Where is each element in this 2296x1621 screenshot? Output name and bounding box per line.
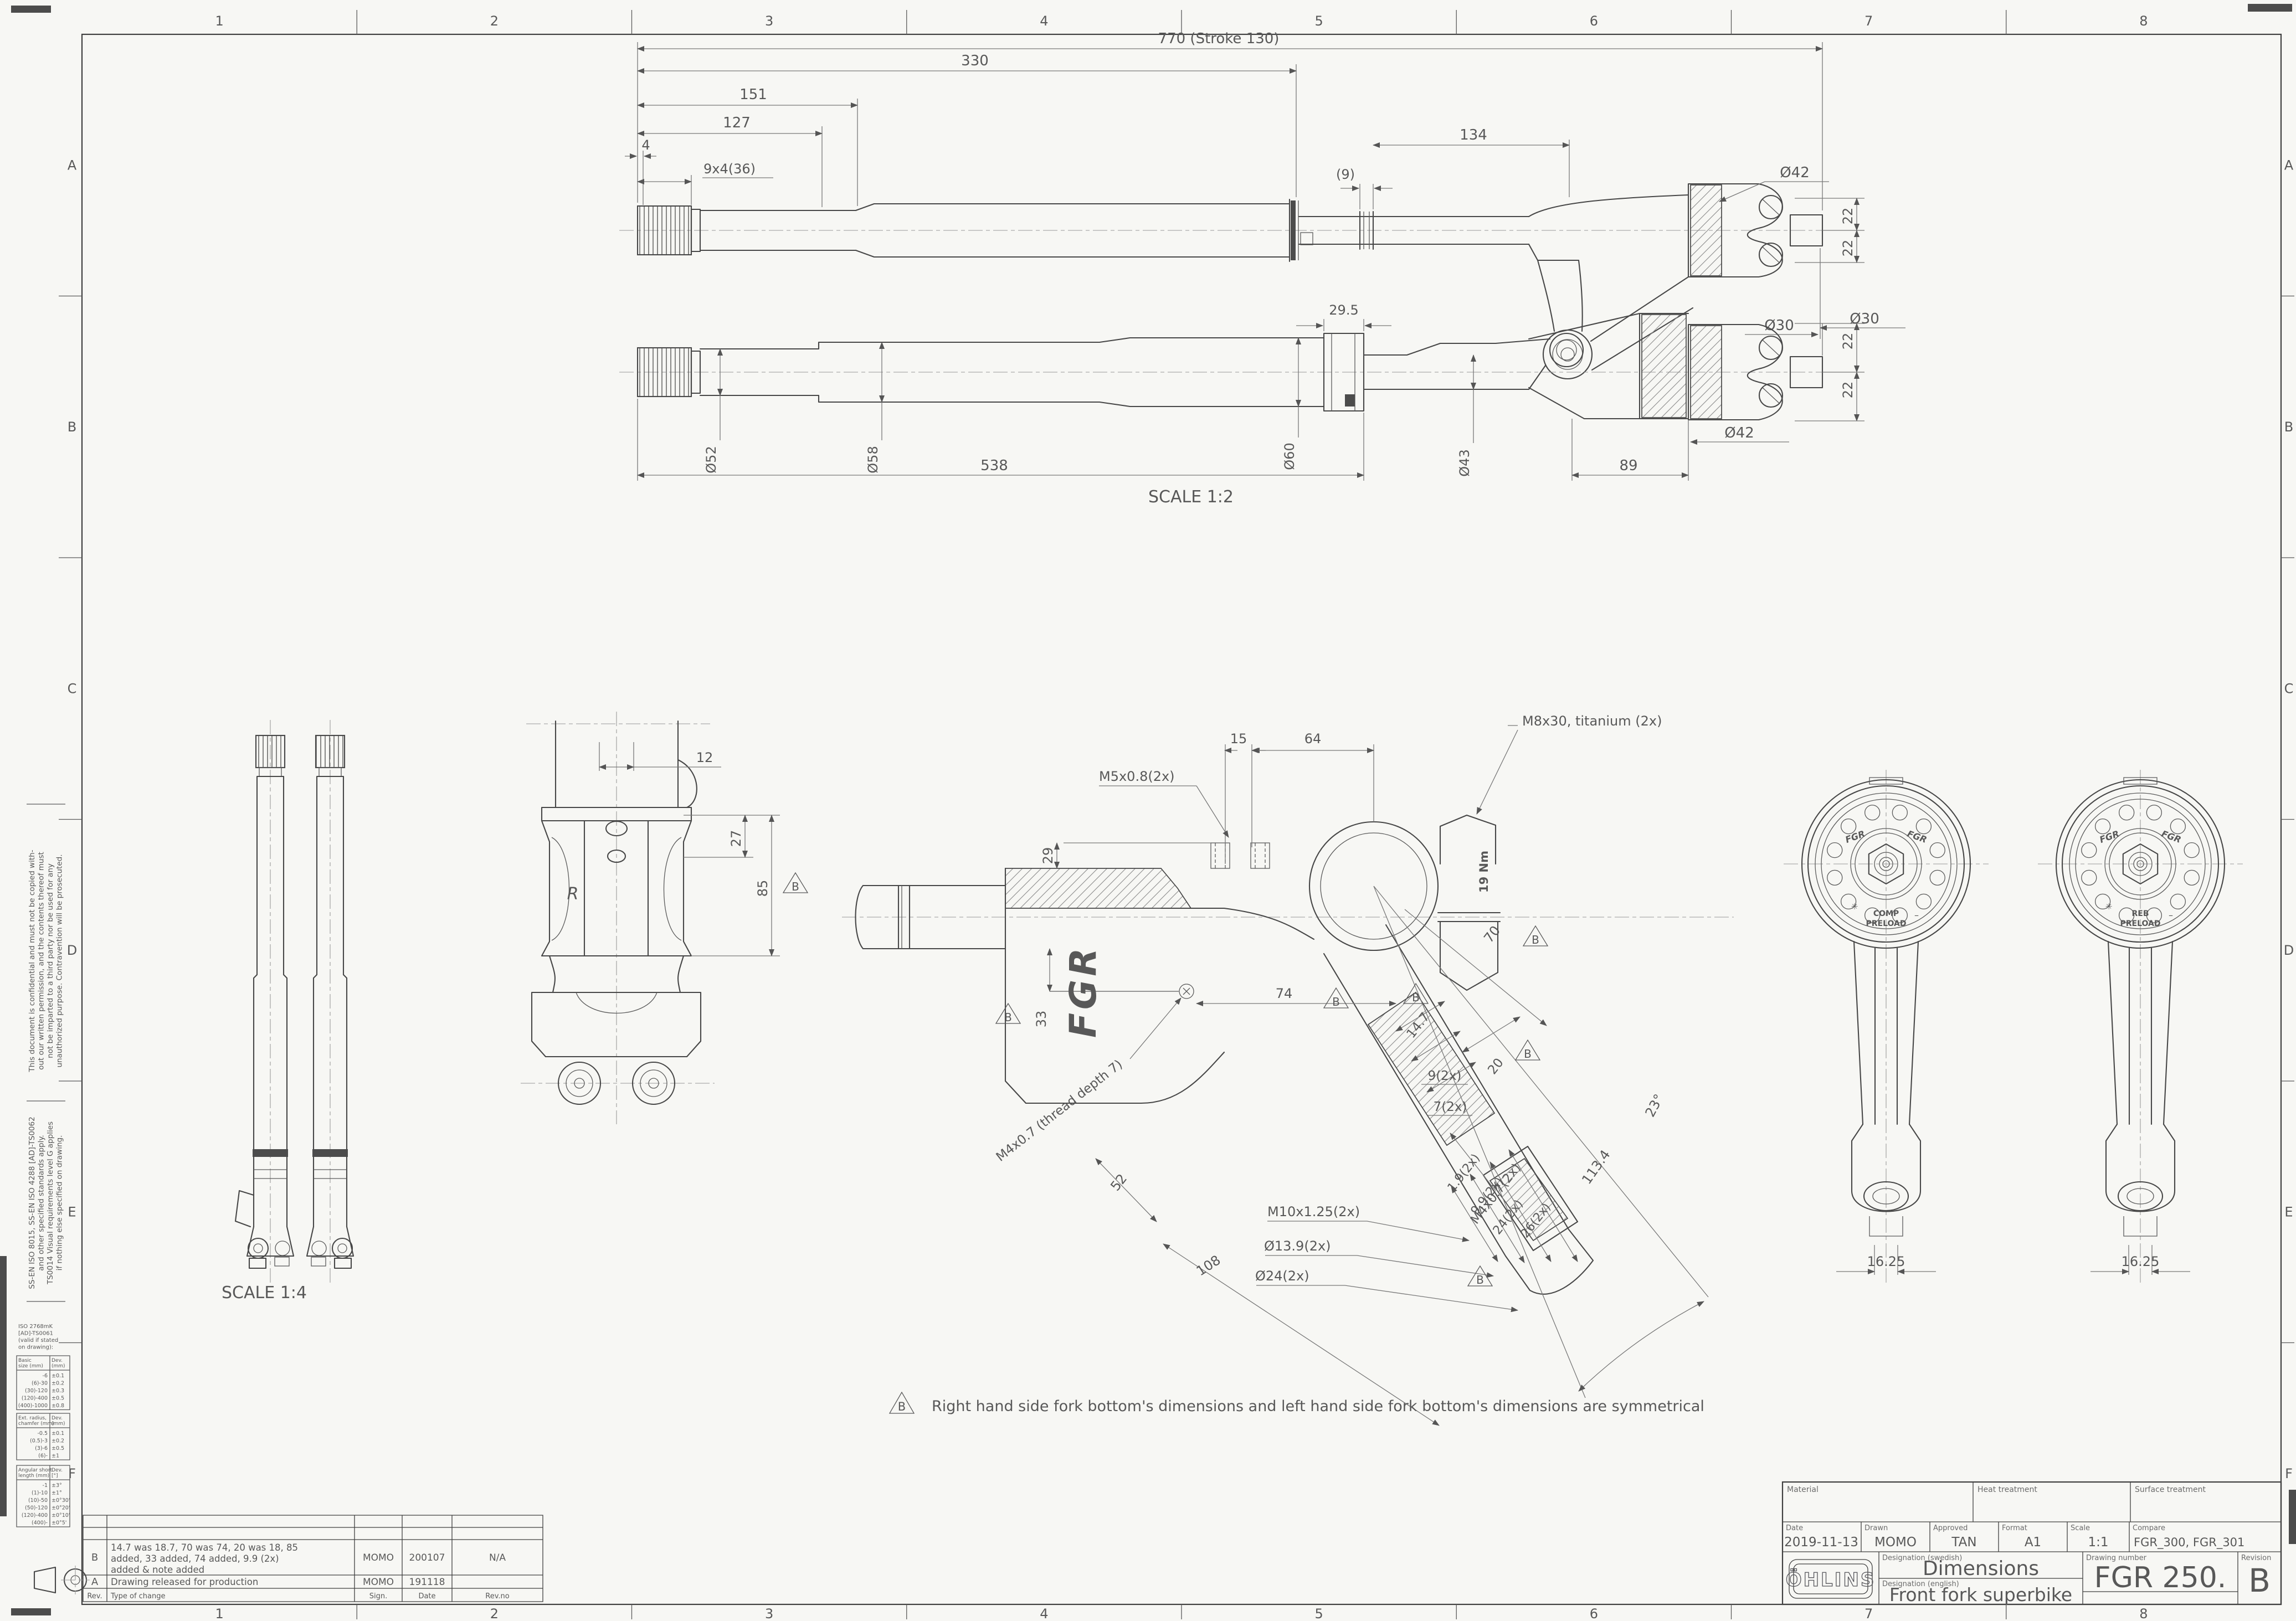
tolerance-cell: (50)-120 — [25, 1505, 48, 1511]
adjuster-hole — [1930, 870, 1945, 885]
tolerance-cell: ±0.1 — [52, 1373, 64, 1379]
value-designation-en: Front fork superbike — [1889, 1584, 2072, 1605]
datum-b: B — [1412, 991, 1420, 1004]
confidentiality-note-line: This document is confidential and must n… — [28, 850, 37, 1072]
grid-row-label: E — [68, 1204, 76, 1219]
adjuster-hole — [1892, 805, 1907, 820]
dim-538: 538 — [980, 457, 1008, 474]
label-compare: Compare — [2133, 1524, 2165, 1532]
label-format: Format — [2002, 1524, 2027, 1532]
value-revision: B — [2248, 1562, 2271, 1599]
grid-col-label: 8 — [2139, 1606, 2148, 1621]
tolerance-cell: ±0.2 — [52, 1438, 64, 1444]
dim-33: 33 — [1034, 1011, 1049, 1028]
label-date: Date — [1786, 1524, 1803, 1532]
dim-d24: Ø24(2x) — [1255, 1268, 1309, 1284]
value-drawn: MOMO — [1874, 1535, 1917, 1550]
tolerance-cell: (120)-400 — [22, 1512, 48, 1519]
dim-19x: 1.9(2x) — [1445, 1151, 1483, 1195]
dim-330: 330 — [961, 53, 989, 69]
revision-header: Date — [418, 1592, 435, 1601]
adjuster-plus-icon: – — [1914, 910, 1919, 920]
revision-sign: MOMO — [363, 1552, 394, 1563]
confidentiality-note-line: not be imparted to a third party nor be … — [46, 863, 55, 1058]
tolerance-cell: (6)-30 — [32, 1381, 48, 1387]
adjuster-plus-icon: – — [2169, 910, 2173, 920]
torque-label: 19 Nm — [1477, 851, 1491, 893]
revision-header: Rev.no — [485, 1592, 510, 1601]
value-date: 2019-11-13 — [1784, 1535, 1858, 1550]
tolerance-cell: -1 — [43, 1483, 48, 1489]
tolerance-cell: -6 — [43, 1373, 48, 1379]
dim-d43: Ø43 — [1457, 449, 1472, 476]
grid-row-label: F — [68, 1466, 76, 1481]
grid-col-label: 1 — [215, 13, 223, 29]
tolerance-cell: ±0.5 — [52, 1445, 64, 1452]
grid-row-label: A — [68, 157, 77, 173]
dim-22b: 22 — [1840, 240, 1856, 257]
grid-col-label: 6 — [1590, 13, 1598, 29]
adjuster-function-label: PRELOAD — [2120, 919, 2160, 928]
confidentiality-note-line: out our written permission, and the cont… — [37, 852, 46, 1070]
value-approved: TAN — [1951, 1535, 1976, 1550]
adjuster-hole — [1827, 843, 1842, 858]
tolerance-cell: (400)- — [32, 1520, 48, 1526]
tolerance-header: Ext. radius, — [18, 1416, 47, 1421]
standards-note-line: and other specified standards apply. — [37, 1135, 46, 1270]
revision-sign: MOMO — [363, 1577, 394, 1588]
dim-22c: 22 — [1840, 333, 1856, 350]
adjuster-fgr-logo: FGR — [1906, 828, 1929, 845]
grid-row-label: E — [2284, 1204, 2293, 1219]
revision-no: N/A — [489, 1552, 506, 1563]
tolerance-header: Dev. — [52, 1468, 63, 1473]
value-scale: 1:1 — [2088, 1535, 2108, 1550]
adjuster-hole — [1916, 894, 1931, 909]
adjuster-function-label: COMP — [1873, 909, 1899, 918]
dim-127: 127 — [723, 115, 751, 131]
tolerance-cell: (0.5)-3 — [30, 1438, 48, 1444]
note-text: Right hand side fork bottom's dimensions… — [932, 1398, 1704, 1415]
label-revision: Revision — [2241, 1554, 2271, 1562]
tolerance-cell: ±0°30' — [52, 1498, 70, 1504]
datum-b: B — [1004, 1011, 1012, 1024]
tolerance-cell: ±0°10' — [52, 1512, 70, 1519]
datum-b: B — [1332, 995, 1340, 1008]
datum-b: B — [1476, 1273, 1484, 1286]
adjuster-hole — [2082, 870, 2097, 885]
dim-d60: Ø60 — [1282, 442, 1297, 470]
adjuster-fgr-logo: FGR — [2098, 828, 2121, 845]
dim-27: 27 — [728, 830, 744, 847]
tolerance-cell: -0.5 — [37, 1430, 48, 1437]
adjuster-fgr-logo: FGR — [1844, 828, 1867, 845]
adjuster-hole — [2184, 843, 2199, 858]
dim-12: 12 — [696, 750, 713, 765]
standards-note-line: TS0014 Visual requirements level G appli… — [46, 1121, 55, 1285]
revision-change-line: 14.7 was 18.7, 70 was 74, 20 was 18, 85 — [111, 1542, 298, 1553]
tolerance-cell: (10)-50 — [28, 1498, 48, 1504]
tolerance-cell: ±0.8 — [52, 1403, 64, 1409]
dim-70: 70 — [1481, 923, 1503, 945]
revision-change-line: Drawing released for production — [111, 1577, 258, 1587]
dim-d52: Ø52 — [703, 446, 719, 473]
tolerance-cell: (3)-6 — [35, 1445, 48, 1452]
grid-row-label: A — [2284, 157, 2294, 173]
datum-b: B — [792, 880, 799, 893]
tolerance-header: [°] — [52, 1473, 58, 1479]
tolerance-cell: (1)-10 — [32, 1490, 48, 1496]
dim-22d: 22 — [1840, 382, 1856, 399]
value-format: A1 — [2025, 1535, 2041, 1550]
dim-29: 29 — [1040, 847, 1056, 864]
dim-d30b: Ø30 — [1850, 311, 1879, 327]
view-fork-legs: SCALE 1:4 — [222, 720, 353, 1303]
logo-r: R — [567, 884, 579, 904]
tolerance-note-line: ISO 2768mK — [18, 1324, 53, 1330]
dim-22a: 22 — [1840, 208, 1856, 225]
label-surface: Surface treatment — [2135, 1485, 2206, 1494]
dim-74: 74 — [1276, 986, 1293, 1001]
dim-1134: 113.4 — [1579, 1147, 1613, 1187]
value-compare: FGR_300, FGR_301 — [2134, 1536, 2244, 1550]
adjuster-hole — [2170, 894, 2185, 909]
scale-main-label: SCALE 1:2 — [1148, 487, 1234, 507]
revision-header: Sign. — [369, 1592, 388, 1601]
dim-overall: 770 (Stroke 130) — [1158, 30, 1280, 47]
adjuster-hole — [2184, 870, 2199, 885]
tolerance-cell: ±0°5' — [52, 1520, 66, 1526]
grid-col-label: 4 — [1040, 13, 1048, 29]
tolerance-header: Basic — [18, 1358, 32, 1363]
label-material: Material — [1787, 1485, 1819, 1494]
adjuster-hole — [2119, 805, 2134, 820]
revision-date: 200107 — [409, 1552, 445, 1563]
adjuster-minus-icon: ✳ — [2105, 902, 2113, 912]
adjuster-dim-1625: 16.25 — [1867, 1254, 1905, 1269]
revision-date: 191118 — [409, 1577, 445, 1588]
datum-b: B — [1524, 1047, 1532, 1061]
grid-col-label: 3 — [765, 1606, 773, 1621]
tolerance-cell: ±0.1 — [52, 1430, 64, 1437]
revision-rev: B — [91, 1552, 98, 1563]
dim-d42b: Ø42 — [1724, 425, 1754, 441]
tolerance-header: size (mm) — [18, 1363, 43, 1369]
dim-d42: Ø42 — [1780, 164, 1810, 181]
dim-4: 4 — [641, 137, 650, 153]
revision-header: Rev. — [87, 1592, 102, 1601]
title-block: Material Heat treatment Surface treatmen… — [1783, 1482, 2281, 1605]
revision-change-line: added, 33 added, 74 added, 9.9 (2x) — [111, 1553, 279, 1564]
dim-m4t: M4x0.7 (thread depth 7) — [994, 1057, 1126, 1165]
dim-9: (9) — [1336, 167, 1355, 182]
dim-d58: Ø58 — [865, 446, 881, 473]
standards-note-line: if nothing else specified on drawing. — [55, 1135, 64, 1271]
generated-content: 1122334455667788AABBCCDDEEFFThis documen… — [17, 10, 2294, 1621]
dim-d139: Ø13.9(2x) — [1264, 1238, 1331, 1254]
dim-295: 29.5 — [1329, 302, 1358, 318]
note-symbol: B — [898, 1400, 906, 1413]
tolerance-header: (mm) — [52, 1363, 65, 1369]
dim-7x: 7(2x) — [1434, 1100, 1467, 1114]
tolerance-note-line: on drawing): — [18, 1345, 53, 1351]
confidentiality-note-line: unauthorized purpose. Contravention will… — [55, 854, 64, 1067]
adjuster-hole — [2082, 843, 2097, 858]
grid-col-label: 6 — [1590, 1606, 1598, 1621]
tolerance-cell: ±1 — [52, 1453, 59, 1459]
tolerance-cell: ±1° — [52, 1490, 62, 1496]
adjuster-hole — [1827, 870, 1842, 885]
dim-151: 151 — [739, 86, 767, 103]
grid-row-label: B — [2284, 419, 2293, 435]
revision-header: Type of change — [110, 1592, 166, 1601]
grid-col-label: 2 — [490, 1606, 499, 1621]
grid-row-label: D — [2284, 943, 2294, 958]
grid-col-label: 7 — [1864, 1606, 1873, 1621]
label-approved: Approved — [1933, 1524, 1968, 1532]
tolerance-cell: (6)- — [38, 1453, 48, 1459]
dim-20: 20 — [1485, 1056, 1507, 1077]
tolerance-header: length (mm) — [18, 1473, 49, 1479]
dim-m10: M10x1.25(2x) — [1267, 1204, 1360, 1219]
label-scale: Scale — [2071, 1524, 2090, 1532]
tolerance-note-line: [AD]-TS0061 — [18, 1331, 53, 1337]
dim-89: 89 — [1619, 457, 1637, 474]
grid-row-label: D — [67, 943, 77, 958]
tolerance-cell: (30)-120 — [25, 1388, 48, 1394]
datum-b: B — [1532, 933, 1539, 946]
adjuster-function-label: PRELOAD — [1866, 919, 1906, 928]
grid-row-label: B — [68, 419, 76, 435]
grid-col-label: 1 — [215, 1606, 223, 1621]
grid-col-label: 4 — [1040, 1606, 1048, 1621]
grid-col-label: 7 — [1864, 13, 1873, 29]
adjuster-hole — [2146, 805, 2161, 820]
dim-m5: M5x0.8(2x) — [1099, 769, 1175, 784]
dim-15: 15 — [1230, 731, 1247, 747]
tolerance-cell: (400)-1000 — [18, 1403, 48, 1409]
dim-m8: M8x30, titanium (2x) — [1522, 713, 1662, 729]
dim-134: 134 — [1460, 127, 1487, 143]
tolerance-header: Dev. — [52, 1358, 63, 1363]
tolerance-header: Angular short — [18, 1468, 52, 1473]
dim-85: 85 — [755, 880, 771, 897]
grid-row-label: F — [2285, 1466, 2293, 1481]
ohlins-logo: ÖHLINS — [1786, 1568, 1876, 1591]
dim-108: 108 — [1194, 1252, 1224, 1279]
tolerance-cell: (120)-400 — [22, 1396, 48, 1402]
tolerance-cell: ±0.3 — [52, 1388, 64, 1394]
tolerance-note-line: (valid if stated — [18, 1337, 58, 1344]
tolerance-cell: ±0°20' — [52, 1505, 70, 1511]
tolerance-header: (mm) — [52, 1421, 65, 1427]
grid-col-label: 3 — [765, 13, 773, 29]
value-designation-sv: Dimensions — [1923, 1557, 2039, 1580]
tolerance-cell: ±3° — [52, 1483, 62, 1489]
label-heat: Heat treatment — [1977, 1485, 2037, 1494]
tolerance-cell: ±0.5 — [52, 1396, 64, 1402]
view-fork-compressed: 29.5 Ø52 Ø58 Ø60 Ø43 Ø42 Ø30 22 22 538 8… — [619, 302, 1905, 507]
tolerance-header: chamfer (mm) — [18, 1421, 54, 1427]
revision-rev: A — [91, 1576, 99, 1588]
dim-23deg: 23° — [1642, 1092, 1667, 1120]
tolerance-cell: ±0.2 — [52, 1381, 64, 1387]
adjuster-hole — [1930, 843, 1945, 858]
revision-change-line: added & note added — [111, 1565, 204, 1575]
drawing-sheet: 770 (Stroke 130) 330 151 127 4 9x4(36) (… — [0, 0, 2296, 1621]
tolerance-header: Dev. — [52, 1416, 63, 1421]
label-drawn: Drawn — [1864, 1524, 1888, 1532]
dim-9x: 9(2x) — [1428, 1069, 1462, 1083]
grid-col-label: 5 — [1314, 1606, 1323, 1621]
dim-thread: 9x4(36) — [703, 161, 756, 177]
adjuster-fgr-logo: FGR — [2160, 828, 2183, 845]
adjuster-function-label: REB — [2131, 909, 2149, 918]
cad-drawing: 770 (Stroke 130) 330 151 127 4 9x4(36) (… — [0, 0, 2296, 1621]
sheet-frame — [0, 4, 2296, 1615]
standards-note-line: SS-EN ISO 8015, SS-EN ISO 4288 [AD]-TS00… — [28, 1116, 37, 1289]
grid-col-label: 8 — [2139, 13, 2148, 29]
dim-d30: Ø30 — [1764, 317, 1794, 334]
grid-row-label: C — [68, 681, 77, 696]
adjuster-hole — [1865, 805, 1880, 820]
grid-col-label: 5 — [1314, 13, 1323, 29]
view-fork-bottom-front: R 12 27 85 B — [521, 712, 808, 1124]
view-fork-bottom-section: 19 Nm FGR 29 15 — [842, 713, 1734, 1426]
drawing-note: B Right hand side fork bottom's dimensio… — [890, 1392, 1704, 1415]
adjuster-dim-1625: 16.25 — [2122, 1254, 2160, 1269]
grid-row-label: C — [2284, 681, 2294, 696]
scale-legs-label: SCALE 1:4 — [222, 1283, 307, 1303]
value-drawing-number: FGR 250. — [2094, 1561, 2227, 1594]
grid-col-label: 2 — [490, 13, 499, 29]
dim-64: 64 — [1304, 731, 1322, 747]
adjuster-minus-icon: ✳ — [1851, 902, 1858, 912]
